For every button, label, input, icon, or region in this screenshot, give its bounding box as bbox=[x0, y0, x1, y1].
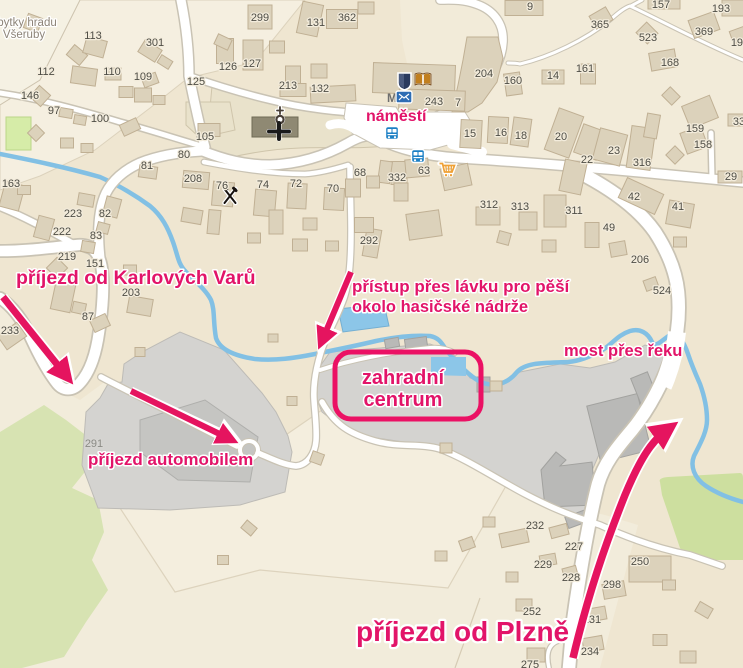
svg-text:80: 80 bbox=[178, 149, 190, 161]
svg-text:208: 208 bbox=[184, 173, 202, 185]
svg-text:316: 316 bbox=[633, 157, 651, 169]
svg-text:250: 250 bbox=[631, 556, 649, 568]
svg-text:113: 113 bbox=[84, 30, 102, 42]
svg-text:146: 146 bbox=[21, 90, 39, 102]
svg-text:20: 20 bbox=[555, 131, 567, 143]
svg-text:206: 206 bbox=[631, 254, 649, 266]
svg-text:87: 87 bbox=[82, 311, 94, 323]
svg-text:157: 157 bbox=[652, 0, 670, 11]
svg-text:70: 70 bbox=[327, 183, 339, 195]
svg-text:312: 312 bbox=[480, 199, 498, 211]
svg-text:42: 42 bbox=[628, 191, 640, 203]
svg-text:365: 365 bbox=[591, 19, 609, 31]
svg-text:193: 193 bbox=[712, 3, 730, 15]
svg-text:68: 68 bbox=[354, 167, 366, 179]
svg-text:243: 243 bbox=[425, 96, 443, 108]
svg-text:112: 112 bbox=[37, 66, 55, 78]
svg-text:233: 233 bbox=[1, 325, 19, 337]
svg-text:160: 160 bbox=[504, 75, 522, 87]
svg-text:náměstí: náměstí bbox=[366, 108, 427, 125]
svg-text:213: 213 bbox=[279, 80, 297, 92]
svg-text:zahradní: zahradní bbox=[362, 367, 446, 389]
svg-text:83: 83 bbox=[90, 230, 102, 242]
svg-text:126: 126 bbox=[219, 61, 237, 73]
svg-text:332: 332 bbox=[388, 172, 406, 184]
svg-text:bytky hradu: bytky hradu bbox=[0, 17, 57, 29]
svg-text:275: 275 bbox=[521, 659, 539, 668]
svg-text:přístup přes lávku pro pěší: přístup přes lávku pro pěší bbox=[352, 277, 571, 296]
svg-text:311: 311 bbox=[565, 205, 583, 217]
svg-text:232: 232 bbox=[526, 520, 544, 532]
svg-text:291: 291 bbox=[85, 438, 103, 450]
svg-text:223: 223 bbox=[64, 208, 82, 220]
svg-text:222: 222 bbox=[53, 226, 71, 238]
svg-text:33: 33 bbox=[733, 116, 743, 128]
svg-text:159: 159 bbox=[686, 123, 704, 135]
svg-text:131: 131 bbox=[307, 17, 325, 29]
svg-text:74: 74 bbox=[257, 179, 269, 191]
svg-text:18: 18 bbox=[515, 130, 527, 142]
svg-text:Všeruby: Všeruby bbox=[3, 29, 45, 41]
svg-text:49: 49 bbox=[603, 222, 615, 234]
svg-text:292: 292 bbox=[360, 235, 378, 247]
svg-text:163: 163 bbox=[2, 178, 20, 190]
svg-text:161: 161 bbox=[576, 63, 594, 75]
svg-text:110: 110 bbox=[103, 66, 121, 78]
svg-text:168: 168 bbox=[661, 57, 679, 69]
svg-text:299: 299 bbox=[251, 12, 269, 24]
svg-text:příjezd od Karlových Varů: příjezd od Karlových Varů bbox=[16, 267, 255, 289]
svg-text:9: 9 bbox=[527, 1, 533, 13]
svg-text:7: 7 bbox=[455, 97, 461, 109]
svg-text:298: 298 bbox=[603, 579, 621, 591]
svg-text:132: 132 bbox=[311, 83, 329, 95]
svg-text:72: 72 bbox=[290, 178, 302, 190]
svg-text:29: 29 bbox=[725, 171, 737, 183]
svg-text:524: 524 bbox=[653, 285, 671, 297]
svg-text:100: 100 bbox=[91, 113, 109, 125]
svg-text:369: 369 bbox=[695, 26, 713, 38]
svg-text:most přes řeku: most přes řeku bbox=[564, 342, 682, 360]
svg-text:127: 127 bbox=[243, 58, 261, 70]
svg-text:příjezd automobilem: příjezd automobilem bbox=[88, 450, 253, 469]
svg-text:41: 41 bbox=[672, 201, 684, 213]
svg-text:105: 105 bbox=[196, 131, 214, 143]
svg-text:81: 81 bbox=[141, 160, 153, 172]
svg-text:16: 16 bbox=[495, 127, 507, 139]
svg-text:234: 234 bbox=[581, 646, 599, 658]
svg-text:15: 15 bbox=[464, 128, 476, 140]
svg-text:82: 82 bbox=[99, 208, 111, 220]
svg-text:centrum: centrum bbox=[364, 389, 443, 411]
svg-text:97: 97 bbox=[48, 105, 60, 117]
svg-text:14: 14 bbox=[547, 70, 559, 82]
svg-text:219: 219 bbox=[58, 251, 76, 263]
svg-text:313: 313 bbox=[511, 201, 529, 213]
svg-text:194: 194 bbox=[731, 37, 743, 49]
svg-text:23: 23 bbox=[608, 145, 620, 157]
svg-text:228: 228 bbox=[562, 572, 580, 584]
svg-text:362: 362 bbox=[338, 12, 356, 24]
svg-text:158: 158 bbox=[694, 139, 712, 151]
svg-text:příjezd od Plzně: příjezd od Plzně bbox=[356, 616, 569, 647]
svg-text:301: 301 bbox=[146, 37, 164, 49]
svg-text:109: 109 bbox=[134, 71, 152, 83]
svg-text:76: 76 bbox=[216, 180, 228, 192]
svg-text:227: 227 bbox=[565, 541, 583, 553]
svg-text:229: 229 bbox=[534, 559, 552, 571]
svg-text:63: 63 bbox=[418, 165, 430, 177]
svg-text:22: 22 bbox=[581, 154, 593, 166]
svg-text:125: 125 bbox=[187, 76, 205, 88]
svg-text:204: 204 bbox=[475, 68, 493, 80]
svg-text:okolo hasičské nádrže: okolo hasičské nádrže bbox=[352, 298, 528, 316]
svg-text:523: 523 bbox=[639, 32, 657, 44]
